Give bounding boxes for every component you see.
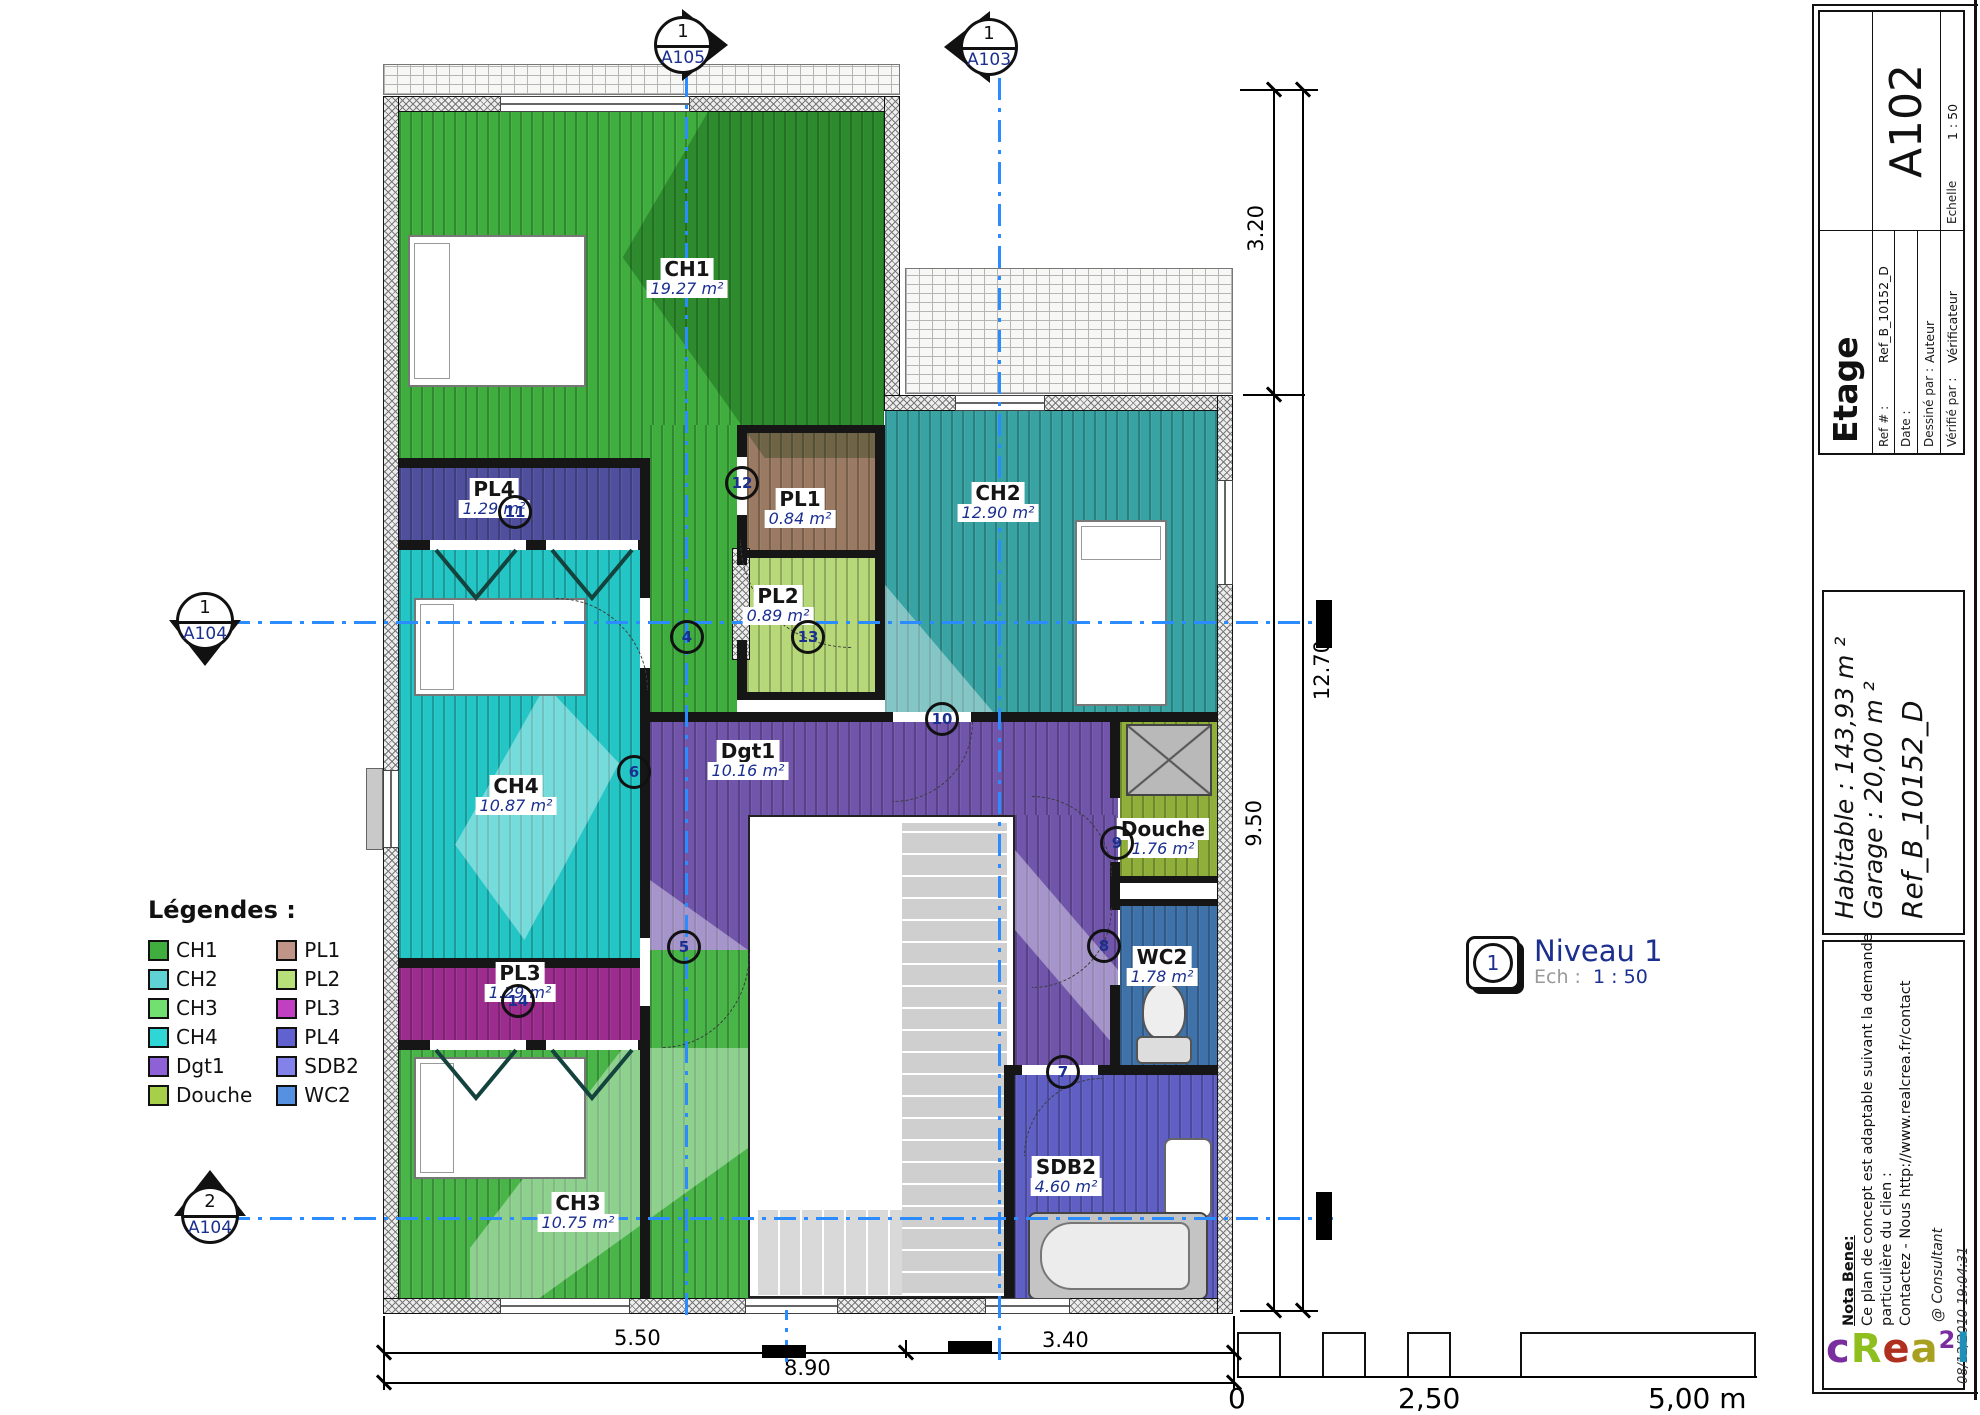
marker-12: 12 — [725, 466, 759, 500]
legend-label: CH3 — [176, 996, 218, 1020]
dim-line — [1273, 90, 1275, 1312]
closet-chevron — [432, 1048, 520, 1102]
legend-label: PL3 — [304, 996, 340, 1020]
section-marker-a105: 1A105 — [654, 16, 712, 74]
wall-douche-left — [1110, 722, 1120, 798]
view-title-block: 1 Niveau 1 Ech : 1 : 50 — [1466, 936, 1663, 990]
legend-label: Dgt1 — [176, 1054, 225, 1078]
legend-swatch — [148, 1027, 169, 1048]
marker-14: 14 — [501, 984, 535, 1018]
legend-title: Légendes : — [148, 896, 359, 924]
wall-pl2-bottom — [737, 692, 885, 700]
wall-pl4-top — [399, 458, 650, 468]
legend-label: PL2 — [304, 967, 340, 991]
window — [383, 770, 399, 848]
view-number-icon: 1 — [1466, 936, 1520, 990]
room-ch1-lower — [399, 425, 650, 458]
legend-label: CH4 — [176, 1025, 218, 1049]
legend-item: CH4 — [148, 1025, 252, 1049]
legend-item: CH1 — [148, 938, 252, 962]
legend-swatch — [148, 969, 169, 990]
field-date: Date : — [1894, 231, 1917, 453]
legend-label: PL1 — [304, 938, 340, 962]
window — [1217, 480, 1233, 585]
legend-item: PL3 — [276, 996, 359, 1020]
legend-label: SDB2 — [304, 1054, 359, 1078]
label-ch4: CH410.87 m² — [476, 775, 557, 815]
balcony-ledge — [366, 768, 383, 850]
legend-item: PL2 — [276, 967, 359, 991]
legend-swatch — [148, 940, 169, 961]
wall-pl-left — [737, 640, 747, 700]
sheet-frame-bottom — [1812, 1392, 1978, 1394]
wall-douche-wc2 — [1110, 899, 1217, 906]
wall-exterior-left — [383, 96, 399, 1314]
marker-11: 11 — [498, 495, 532, 529]
wall-pl1-top — [747, 425, 885, 433]
dim-3-40: 3.40 — [1040, 1328, 1091, 1352]
logo-letter: c — [1826, 1326, 1851, 1372]
wall-douche-wc2 — [1110, 876, 1217, 883]
legend-swatch — [276, 969, 297, 990]
scalebar-500: 5,00 m — [1648, 1382, 1747, 1415]
section-marker-a104-1: 1A104 — [176, 592, 234, 650]
room-ch1-corridor — [650, 425, 737, 712]
legend: Légendes : CH1 CH2 CH3 CH4 Dgt1 Douche P… — [148, 896, 359, 1107]
legend-label: Douche — [176, 1083, 252, 1107]
toilet-tank — [1136, 1036, 1192, 1064]
scalebar-box — [1520, 1332, 1756, 1378]
roof-tiles-right-block — [905, 268, 1233, 394]
legend-label: WC2 — [304, 1083, 350, 1107]
legend-item: Douche — [148, 1083, 252, 1107]
label-sdb2: SDB24.60 m² — [1031, 1156, 1102, 1196]
toilet-bowl — [1142, 982, 1186, 1040]
legend-swatch — [276, 1085, 297, 1106]
dim-line — [383, 1382, 1235, 1384]
crea-logo: cRea2l — [1826, 1326, 1971, 1372]
nota-bene-text: Nota Bene: Ce plan de concept est adapta… — [1840, 936, 1915, 1326]
pillow — [420, 604, 454, 690]
roof-tiles-top — [383, 64, 900, 95]
marker-8: 8 — [1087, 929, 1121, 963]
wall-pl-right — [875, 425, 885, 700]
window — [745, 1298, 838, 1314]
scalebar-box — [1407, 1332, 1451, 1378]
stair-treads — [902, 823, 1007, 1295]
label-ch3: CH310.75 m² — [538, 1192, 619, 1232]
legend-item: CH3 — [148, 996, 252, 1020]
legend-swatch — [276, 1056, 297, 1077]
marker-5: 5 — [667, 930, 701, 964]
stair-landing — [756, 1210, 902, 1295]
legend-swatch — [148, 998, 169, 1019]
logo-letter: 2 — [1939, 1326, 1957, 1354]
marker-13: 13 — [791, 620, 825, 654]
label-pl2: PL20.89 m² — [743, 585, 814, 625]
label-pl1: PL10.84 m² — [765, 488, 836, 528]
section-cut-bar — [1316, 600, 1332, 648]
dim-line — [383, 1352, 1235, 1354]
scalebar-250: 2,50 — [1398, 1382, 1460, 1415]
pillow — [414, 243, 450, 379]
sheet-frame-top — [1812, 4, 1978, 6]
closet-chevron — [548, 1048, 636, 1102]
plan-reference: Ref_B_10152_D — [1896, 606, 1929, 919]
marker-7: 7 — [1046, 1055, 1080, 1089]
door-gap-ch3 — [640, 938, 650, 1006]
scalebar-baseline — [1237, 1376, 1757, 1378]
wall-exterior-rightblock-top — [884, 395, 1233, 411]
wall-pl-left — [737, 425, 747, 457]
axis-line-a104-2 — [228, 1217, 1333, 1220]
marker-6: 6 — [617, 755, 651, 789]
label-dgt1: Dgt110.16 m² — [708, 740, 789, 780]
legend-swatch — [276, 940, 297, 961]
field-ref: Ref # :Ref_B_10152_D — [1872, 231, 1895, 453]
legend-swatch — [148, 1085, 169, 1106]
dim-8-90: 8.90 — [782, 1356, 833, 1380]
dim-line — [1302, 90, 1304, 1312]
logo-letter: R — [1851, 1326, 1883, 1372]
bathtub-inner — [1040, 1222, 1190, 1290]
sheet-view-title: Etage — [1820, 231, 1872, 453]
dim-3-20: 3.20 — [1242, 205, 1270, 252]
logo-letter: e — [1883, 1326, 1911, 1372]
wall-exterior-mid-right — [884, 96, 900, 411]
section-cut-bar — [1316, 1192, 1332, 1240]
consultant-credit: @ Consultant — [1930, 1192, 1946, 1322]
section-marker-a104-2: 2A104 — [181, 1186, 239, 1244]
legend-item: CH2 — [148, 967, 252, 991]
field-scale: Echelle1 : 50 — [1940, 12, 1963, 230]
pillow — [1081, 526, 1161, 560]
legend-item: WC2 — [276, 1083, 359, 1107]
sheet-frame-left — [1812, 4, 1814, 1394]
logo-letter: a — [1911, 1326, 1939, 1372]
sink — [1164, 1138, 1212, 1218]
view-name: Niveau 1 — [1534, 936, 1663, 966]
legend-label: CH2 — [176, 967, 218, 991]
closet-chevron — [548, 548, 636, 602]
logo-letter: l — [1956, 1326, 1971, 1372]
section-cut-bar — [762, 1345, 806, 1358]
axis-line-a105 — [685, 30, 688, 1315]
habitable-area: Habitable : 143,93 m ² — [1830, 606, 1859, 919]
legend-item: PL1 — [276, 938, 359, 962]
sheet-number: A102 — [1872, 12, 1940, 230]
titleblock-areas: Habitable : 143,93 m ² Garage : 20,00 m … — [1822, 590, 1965, 935]
legend-swatch — [276, 998, 297, 1019]
view-scale: Ech : 1 : 50 — [1534, 966, 1663, 988]
dim-12-70: 12.70 — [1308, 640, 1336, 700]
marker-9: 9 — [1100, 826, 1134, 860]
dim-9-50: 9.50 — [1240, 800, 1268, 847]
floor-plan: CH119.27 m² CH212.90 m² CH310.75 m² CH41… — [0, 0, 1980, 1400]
shower-tray — [1126, 724, 1212, 796]
legend-item: SDB2 — [276, 1054, 359, 1078]
label-ch1: CH119.27 m² — [647, 258, 728, 298]
legend-label: CH1 — [176, 938, 218, 962]
legend-item: PL4 — [276, 1025, 359, 1049]
window — [500, 1298, 630, 1314]
titleblock-main: Etage Ref # :Ref_B_10152_D Date : Dessin… — [1818, 10, 1965, 455]
sheet-frame-right — [1974, 0, 1977, 1400]
window — [500, 96, 690, 112]
label-ch2: CH212.90 m² — [958, 482, 1039, 522]
dim-5-50: 5.50 — [612, 1326, 663, 1350]
wall-wc2-left — [1110, 985, 1120, 1073]
marker-4: 4 — [670, 620, 704, 654]
marker-10: 10 — [925, 702, 959, 736]
legend-item: Dgt1 — [148, 1054, 252, 1078]
legend-label: PL4 — [304, 1025, 340, 1049]
section-marker-a103: 1A103 — [960, 18, 1018, 76]
scalebar-box — [1322, 1332, 1366, 1378]
legend-swatch — [276, 1027, 297, 1048]
legend-swatch — [148, 1056, 169, 1077]
closet-chevron — [432, 548, 520, 602]
axis-line-a103 — [998, 75, 1001, 1360]
scalebar-box — [1237, 1332, 1281, 1378]
wall-sdb2-left — [1004, 1065, 1014, 1298]
section-cut-bar — [948, 1341, 992, 1354]
field-drawn-by: Dessiné par :Auteur — [1917, 231, 1940, 453]
garage-area: Garage : 20,00 m ² — [1859, 606, 1888, 919]
field-checked-by: Vérifié par :Vérificateur — [1940, 231, 1963, 453]
label-wc2: WC21.78 m² — [1127, 946, 1198, 986]
wall-spine — [640, 458, 650, 1298]
